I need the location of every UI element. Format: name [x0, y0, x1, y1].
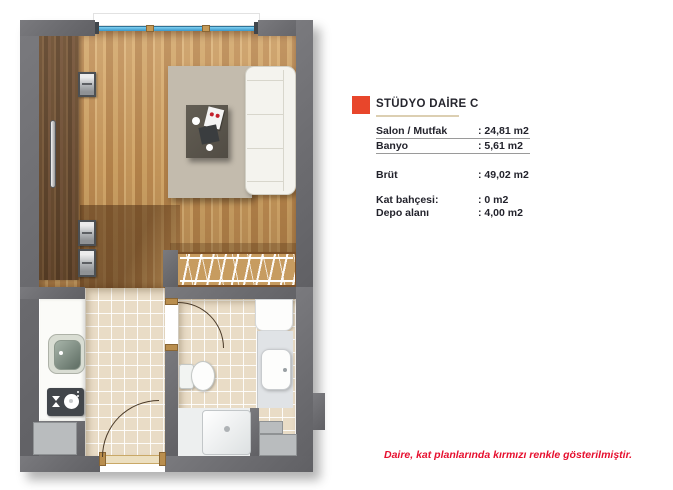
legend-row-value: : 5,61 m2 — [478, 140, 523, 152]
storage-niche-right-upper — [259, 421, 283, 434]
kitchen-sink — [48, 334, 85, 374]
sofa — [245, 66, 296, 195]
sink-basin — [54, 340, 81, 370]
legend-row-value: : 4,00 m2 — [478, 207, 523, 219]
legend-row-label: Depo alanı — [376, 207, 429, 219]
entry-door-jamb — [159, 452, 166, 466]
cooktop-hourglass — [52, 396, 60, 401]
legend-row-label: Salon / Mutfak — [376, 125, 447, 137]
magazine-dot — [215, 113, 220, 118]
sofa-cushion-line — [247, 80, 283, 81]
wardrobe — [39, 36, 79, 280]
sofa-backrest-line — [283, 70, 284, 191]
wardrobe-handle — [50, 120, 56, 188]
storage-niche-left — [33, 422, 77, 455]
shower-tray — [202, 410, 251, 455]
wall-divider-left — [20, 287, 85, 299]
window-mullion — [146, 25, 154, 32]
sofa-cushion-line — [247, 148, 283, 149]
sink-drain — [59, 351, 63, 355]
cabinet-box — [78, 220, 96, 246]
legend-row-rule — [376, 153, 530, 154]
toilet-bowl — [191, 361, 215, 391]
storage-niche-right — [259, 434, 297, 456]
legend-row-label: Brüt — [376, 169, 398, 181]
legend-note: Daire, kat planlarında kırmızı renkle gö… — [350, 449, 666, 461]
window-glass — [95, 26, 258, 31]
window-sill — [93, 13, 260, 26]
legend-row-label: Banyo — [376, 140, 408, 152]
cooktop — [47, 388, 84, 416]
shower-drain — [224, 426, 230, 432]
sofa-cushion-line — [247, 114, 283, 115]
legend-title-rule — [376, 115, 459, 117]
cooktop-dot — [77, 391, 79, 393]
legend-title: STÜDYO DAİRE C — [376, 98, 479, 110]
magazine-dot — [209, 112, 214, 117]
floorplan-page: STÜDYO DAİRE C Salon / Mutfak : 24,81 m2… — [0, 0, 673, 490]
legend-row-value: : 49,02 m2 — [478, 169, 529, 181]
window-mullion — [202, 25, 210, 32]
wall-right-bump — [313, 393, 325, 430]
wall-bottom-left — [20, 456, 100, 472]
cabinet-box — [78, 249, 96, 277]
wall-divider-right — [165, 287, 313, 299]
wall-top-left — [20, 20, 95, 36]
radiator — [176, 252, 297, 287]
cabinet-box — [78, 72, 96, 97]
bath-cabinet — [255, 299, 293, 331]
table-object — [198, 124, 219, 144]
legend-row-value: : 24,81 m2 — [478, 125, 529, 137]
legend-marker — [352, 96, 370, 114]
bathroom-door-jamb — [165, 344, 178, 351]
washbasin — [261, 349, 291, 390]
wall-right-upper — [296, 20, 313, 287]
cooktop-hourglass — [52, 402, 60, 407]
wall-bottom-right — [165, 456, 313, 472]
radiator-rail — [180, 280, 293, 282]
legend-row-rule — [376, 138, 530, 139]
coffee-table — [186, 105, 228, 158]
table-plate — [206, 144, 213, 151]
table-plate — [192, 117, 200, 125]
legend-row-label: Kat bahçesi: — [376, 194, 438, 206]
bathroom-door-jamb — [165, 298, 178, 305]
legend-row-value: : 0 m2 — [478, 194, 508, 206]
cooktop-dot — [77, 395, 79, 397]
radiator-rail — [180, 257, 293, 259]
wall-bathroom-left — [165, 348, 178, 457]
sofa-cushion-line — [247, 181, 283, 182]
wall-radiator-stub — [163, 250, 178, 287]
wall-right-lower — [296, 287, 313, 472]
wall-left — [20, 20, 39, 472]
wall-shower-divider — [250, 408, 259, 456]
